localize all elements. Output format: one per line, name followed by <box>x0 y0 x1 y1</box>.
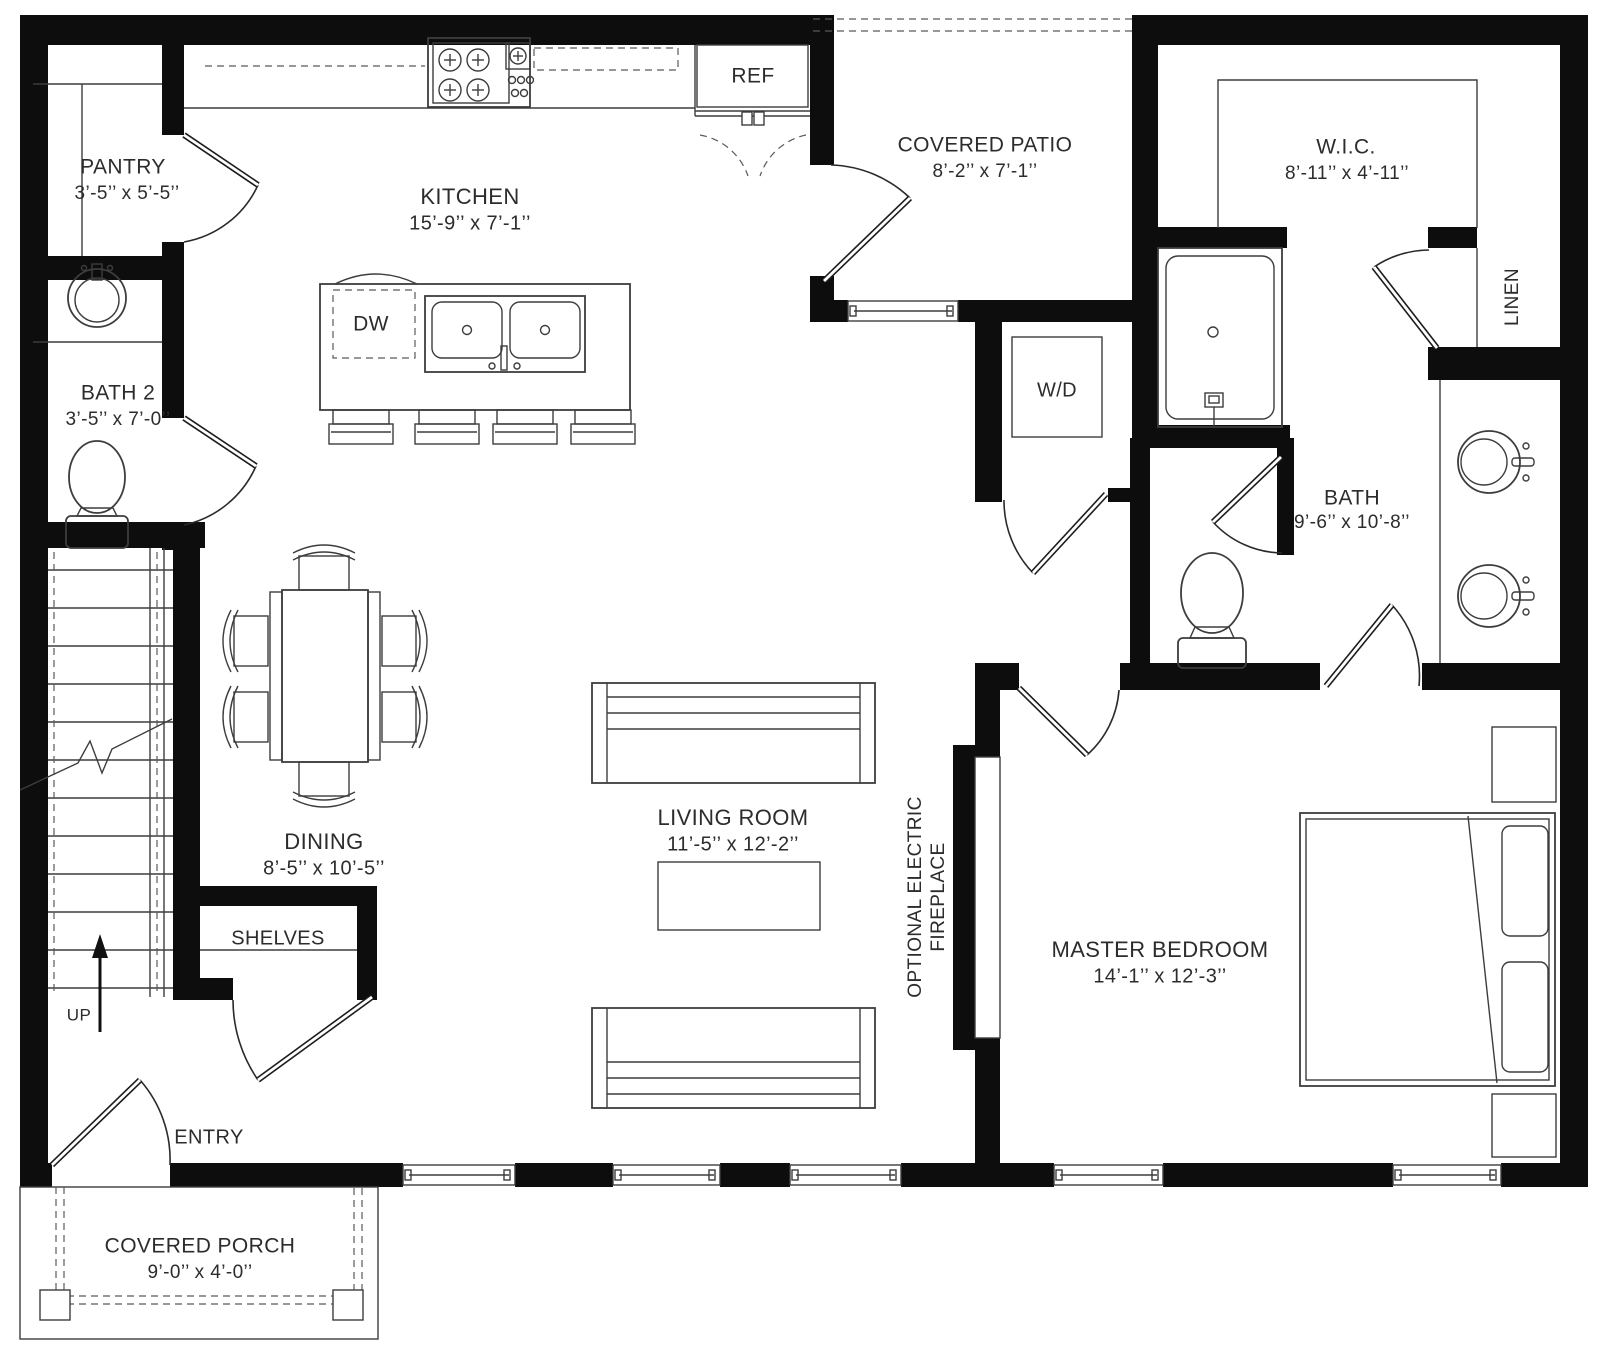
coffee-table <box>658 862 820 930</box>
burner <box>510 48 526 64</box>
window <box>403 1165 515 1185</box>
fireplace-insert <box>975 757 1000 1038</box>
entry-label: ENTRY <box>174 1126 243 1148</box>
stool <box>493 410 557 444</box>
vanity-sink <box>1458 431 1534 493</box>
nightstand <box>1492 727 1556 802</box>
washer-dryer-door <box>1004 494 1106 573</box>
dining-chair <box>293 545 355 590</box>
dining-dims: 8’-5’’ x 10’-5’’ <box>263 857 385 879</box>
dining-table <box>282 590 368 762</box>
bath-dims: 9’-6’’ x 10’-8’’ <box>1294 512 1410 533</box>
covered-porch-label: COVERED PORCH <box>105 1235 296 1258</box>
dining-chair <box>382 686 427 748</box>
ref-label: REF <box>731 65 774 88</box>
dining-set <box>223 545 427 807</box>
pantry-label: PANTRY <box>80 156 166 179</box>
master-bath-door <box>1326 605 1419 686</box>
dining-chair <box>223 686 268 748</box>
covered-porch-dims: 9’-0’’ x 4’-0’’ <box>148 1262 253 1283</box>
bath2-dims: 3’-5’’ x 7’-0’’ <box>66 409 171 430</box>
bath-label: BATH <box>1324 487 1380 510</box>
living-room-dims: 11’-5’’ x 12’-2’’ <box>667 833 799 855</box>
pillow <box>1502 826 1548 936</box>
sofa <box>592 1008 875 1108</box>
vanity-sink <box>1458 565 1534 627</box>
burner <box>439 79 461 101</box>
stool <box>415 410 479 444</box>
up-arrow-head <box>92 934 108 958</box>
shelves-label: SHELVES <box>231 927 325 949</box>
fireplace-label-line1: OPTIONAL ELECTRIC <box>905 796 926 997</box>
burner <box>467 79 489 101</box>
entry-door <box>52 1080 170 1165</box>
kitchen-dims: 15’-9’’ x 7’-1’’ <box>409 212 531 234</box>
sofa <box>592 683 875 783</box>
burner <box>467 49 489 71</box>
burner <box>439 49 461 71</box>
bed <box>1300 813 1555 1086</box>
window <box>790 1165 901 1185</box>
master-bedroom-furniture <box>1300 727 1556 1157</box>
porch-post <box>40 1290 70 1320</box>
bath-toilet-door <box>1213 457 1282 553</box>
nightstand <box>1492 1094 1556 1157</box>
master-door <box>1019 688 1119 755</box>
up-label: UP <box>67 1005 91 1024</box>
dw-label: DW <box>353 313 389 336</box>
patio-door <box>824 165 910 281</box>
wic-label: W.I.C. <box>1316 136 1376 159</box>
kitchen-sink <box>425 296 585 372</box>
kitchen-island <box>320 274 630 410</box>
shelves-door <box>233 997 372 1080</box>
dining-chair <box>382 610 427 672</box>
window <box>848 301 958 321</box>
wic-dims: 8’-11’’ x 4’-11’’ <box>1285 163 1409 184</box>
linen-door <box>1374 250 1437 348</box>
dining-label: DINING <box>284 829 363 854</box>
fireplace-label-line2: FIREPLACE <box>928 842 949 951</box>
master-bedroom-dims: 14’-1’’ x 12’-3’’ <box>1093 965 1226 987</box>
linen-label: LINEN <box>1502 268 1523 326</box>
covered-patio-label: COVERED PATIO <box>898 134 1073 157</box>
bath2-fixtures <box>33 264 162 548</box>
living-room-label: LIVING ROOM <box>657 805 808 830</box>
porch-post <box>333 1290 363 1320</box>
island-stools <box>329 410 635 444</box>
stool <box>571 410 635 444</box>
covered-patio-dims: 8’-2’’ x 7’-1’’ <box>933 161 1038 182</box>
bath-toilet <box>1178 553 1246 668</box>
bath2-door <box>184 418 256 525</box>
window <box>613 1165 720 1185</box>
kitchen-label: KITCHEN <box>420 184 519 209</box>
dining-chair <box>223 610 268 672</box>
windows <box>403 301 1501 1185</box>
wd-label: W/D <box>1037 379 1077 401</box>
floor-plan: PANTRY 3’-5’’ x 5’-5’’ KITCHEN 15’-9’’ x… <box>0 0 1600 1365</box>
bath2-label: BATH 2 <box>81 382 155 405</box>
fridge-door-swing <box>760 135 806 176</box>
kitchen-fixtures <box>184 38 810 444</box>
stove <box>428 38 534 107</box>
fridge-door-swing <box>700 135 748 176</box>
pantry-dims: 3’-5’’ x 5’-5’’ <box>75 183 180 204</box>
floor-plan-page: PANTRY 3’-5’’ x 5’-5’’ KITCHEN 15’-9’’ x… <box>0 0 1600 1365</box>
master-bedroom-label: MASTER BEDROOM <box>1051 937 1268 962</box>
doors <box>52 135 1437 1165</box>
stool <box>329 410 393 444</box>
fireplace-slab <box>953 745 975 1050</box>
shower <box>1158 248 1282 427</box>
window <box>1393 1165 1501 1185</box>
window <box>1054 1165 1163 1185</box>
pantry-door <box>184 135 258 242</box>
dining-chair <box>293 762 355 807</box>
pillow <box>1502 962 1548 1072</box>
